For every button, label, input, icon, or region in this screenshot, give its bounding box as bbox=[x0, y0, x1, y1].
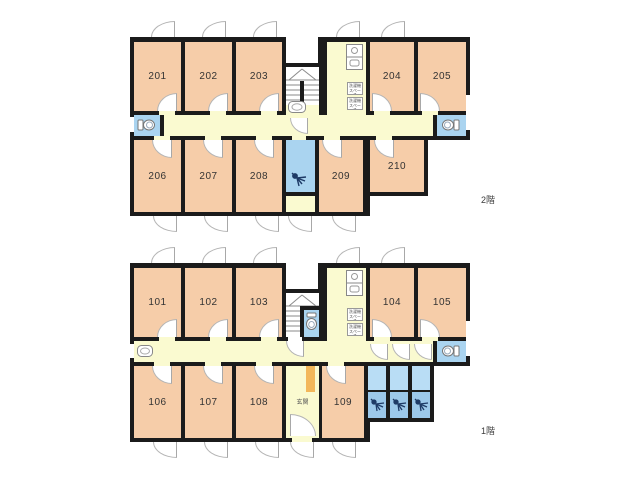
door-gap bbox=[210, 337, 226, 341]
room-203-label: 203 bbox=[250, 71, 268, 82]
1f-washbasin-icon bbox=[137, 344, 153, 362]
floor-label-2f: 2階 bbox=[481, 193, 495, 206]
door-arc bbox=[255, 442, 279, 458]
door-arc bbox=[255, 216, 279, 232]
room-208-label: 208 bbox=[250, 171, 268, 182]
door-arc bbox=[151, 247, 175, 263]
room-103-label: 103 bbox=[250, 297, 268, 308]
2f-laundry-space-1: 洗濯機スペース bbox=[347, 82, 363, 95]
door-arc bbox=[381, 247, 405, 263]
1f-shower-stall-1 bbox=[368, 392, 386, 418]
door-arc bbox=[253, 21, 277, 37]
2f-window-right bbox=[466, 95, 470, 130]
1f-window-left bbox=[130, 344, 134, 358]
door-arc bbox=[332, 442, 356, 458]
door-arc bbox=[204, 442, 228, 458]
door-gap bbox=[210, 111, 226, 115]
room-105-label: 105 bbox=[433, 297, 451, 308]
1f-entrance-label: 玄関 bbox=[286, 397, 319, 406]
door-arc bbox=[202, 247, 226, 263]
1f-window-right bbox=[466, 321, 470, 356]
room-204-label: 204 bbox=[383, 71, 401, 82]
2f-toilet-left-wall bbox=[160, 115, 164, 136]
door-gap bbox=[422, 111, 438, 115]
1f-shower-stall-2-dressing bbox=[390, 366, 408, 390]
2f-shower-room bbox=[286, 140, 315, 192]
2f-shower-vestibule bbox=[286, 196, 315, 212]
1f-laundry-space-1: 洗濯機スペース bbox=[347, 308, 363, 321]
1f-shower-stall-1-dressing bbox=[368, 366, 386, 390]
room-107-label: 107 bbox=[199, 397, 217, 408]
1f-shower-stall-2 bbox=[390, 392, 408, 418]
2f-toilet-right-icon bbox=[441, 118, 460, 137]
door-arc bbox=[151, 21, 175, 37]
2f-washbasin-icon bbox=[288, 100, 306, 118]
door-arc bbox=[204, 216, 228, 232]
door-arc bbox=[336, 247, 360, 263]
door-gap bbox=[261, 337, 277, 341]
door-gap bbox=[374, 337, 390, 341]
door-arc bbox=[381, 21, 405, 37]
door-arc bbox=[336, 21, 360, 37]
door-gap bbox=[159, 337, 175, 341]
room-102-label: 102 bbox=[199, 297, 217, 308]
1f-toilet-right-wall bbox=[433, 341, 437, 362]
shower-icon bbox=[286, 140, 315, 192]
floor-label-1f: 1階 bbox=[481, 424, 495, 437]
room-201-label: 201 bbox=[148, 71, 166, 82]
floor-plan-canvas: 201 202 203 204 205 206 207 208 bbox=[0, 0, 640, 480]
door-gap bbox=[422, 337, 438, 341]
1f-stair-notch bbox=[286, 263, 318, 289]
2f-toilet-right-wall bbox=[433, 115, 437, 136]
door-arc bbox=[202, 21, 226, 37]
1f-laundry-space-2: 洗濯機スペース bbox=[347, 323, 363, 336]
1f-toilet-right-icon bbox=[441, 344, 460, 363]
1f-kitchen-unit-icon bbox=[346, 270, 363, 301]
2f-stair-notch bbox=[286, 37, 318, 63]
2f-laundry-space-2: 洗濯機スペース bbox=[347, 97, 363, 110]
door-arc bbox=[288, 216, 312, 232]
shower-icon bbox=[412, 392, 430, 418]
room-108-label: 108 bbox=[250, 397, 268, 408]
entrance-door-arc bbox=[290, 442, 314, 458]
1f-genkan-step bbox=[306, 366, 315, 392]
door-gap bbox=[261, 111, 277, 115]
room-209-label: 209 bbox=[332, 171, 350, 182]
room-206-label: 206 bbox=[148, 171, 166, 182]
door-gap bbox=[159, 111, 175, 115]
room-205-label: 205 bbox=[433, 71, 451, 82]
1f-toilet-by-stairs bbox=[304, 310, 319, 337]
room-101-label: 101 bbox=[148, 297, 166, 308]
room-202-label: 202 bbox=[199, 71, 217, 82]
room-207-label: 207 bbox=[199, 171, 217, 182]
2f-window-left bbox=[130, 117, 134, 132]
door-arc bbox=[253, 247, 277, 263]
door-arc bbox=[332, 216, 356, 232]
door-arc bbox=[153, 442, 177, 458]
shower-icon bbox=[390, 392, 408, 418]
room-106-label: 106 bbox=[148, 397, 166, 408]
shower-icon bbox=[368, 392, 386, 418]
door-arc bbox=[153, 216, 177, 232]
room-210-label: 210 bbox=[388, 161, 406, 172]
door-gap bbox=[292, 136, 306, 140]
1f-shower-stall-3-dressing bbox=[412, 366, 430, 390]
2f-kitchen-unit-icon bbox=[346, 44, 363, 75]
toilet-icon bbox=[304, 310, 319, 337]
room-109-label: 109 bbox=[334, 397, 352, 408]
room-104-label: 104 bbox=[383, 297, 401, 308]
1f-shower-stall-3 bbox=[412, 392, 430, 418]
2f-toilet-left-icon bbox=[137, 118, 156, 137]
door-gap bbox=[374, 111, 390, 115]
